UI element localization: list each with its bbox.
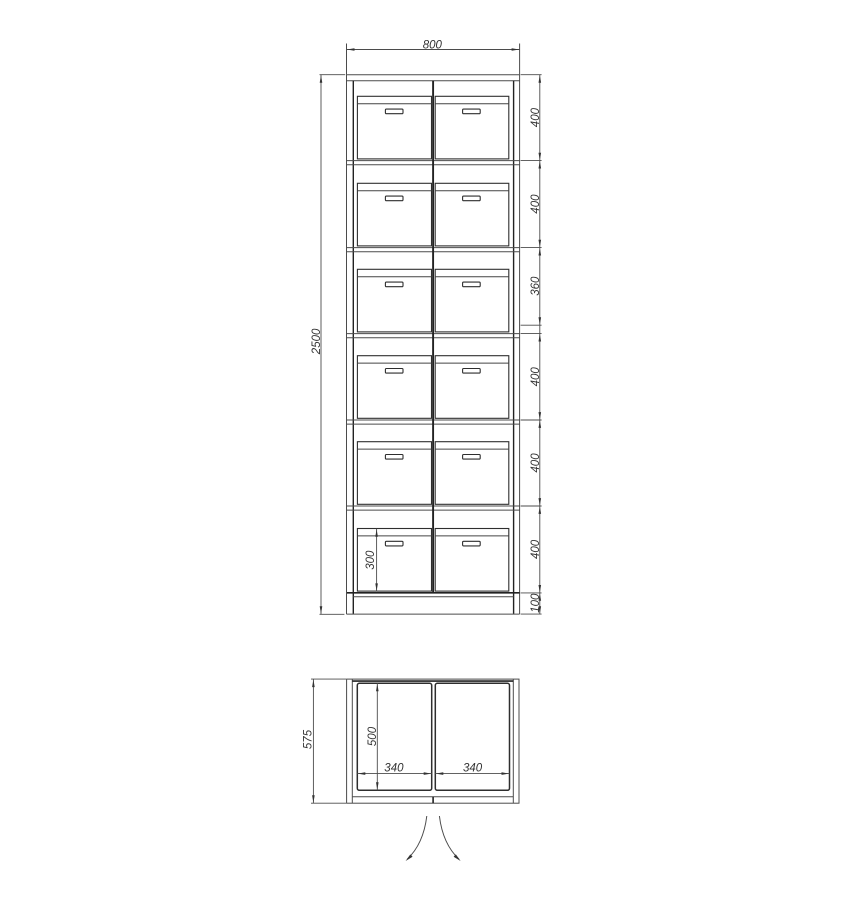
- svg-text:300: 300: [365, 550, 377, 570]
- svg-text:400: 400: [530, 453, 542, 473]
- svg-text:400: 400: [530, 367, 542, 387]
- svg-text:400: 400: [530, 539, 542, 559]
- svg-text:2500: 2500: [311, 328, 323, 355]
- svg-text:400: 400: [530, 107, 542, 127]
- svg-text:100: 100: [530, 593, 542, 613]
- svg-text:340: 340: [384, 763, 404, 775]
- svg-text:800: 800: [423, 40, 443, 52]
- svg-text:575: 575: [303, 729, 315, 749]
- svg-text:360: 360: [530, 276, 542, 296]
- svg-text:400: 400: [530, 194, 542, 214]
- svg-text:500: 500: [367, 726, 379, 746]
- svg-text:340: 340: [463, 763, 483, 775]
